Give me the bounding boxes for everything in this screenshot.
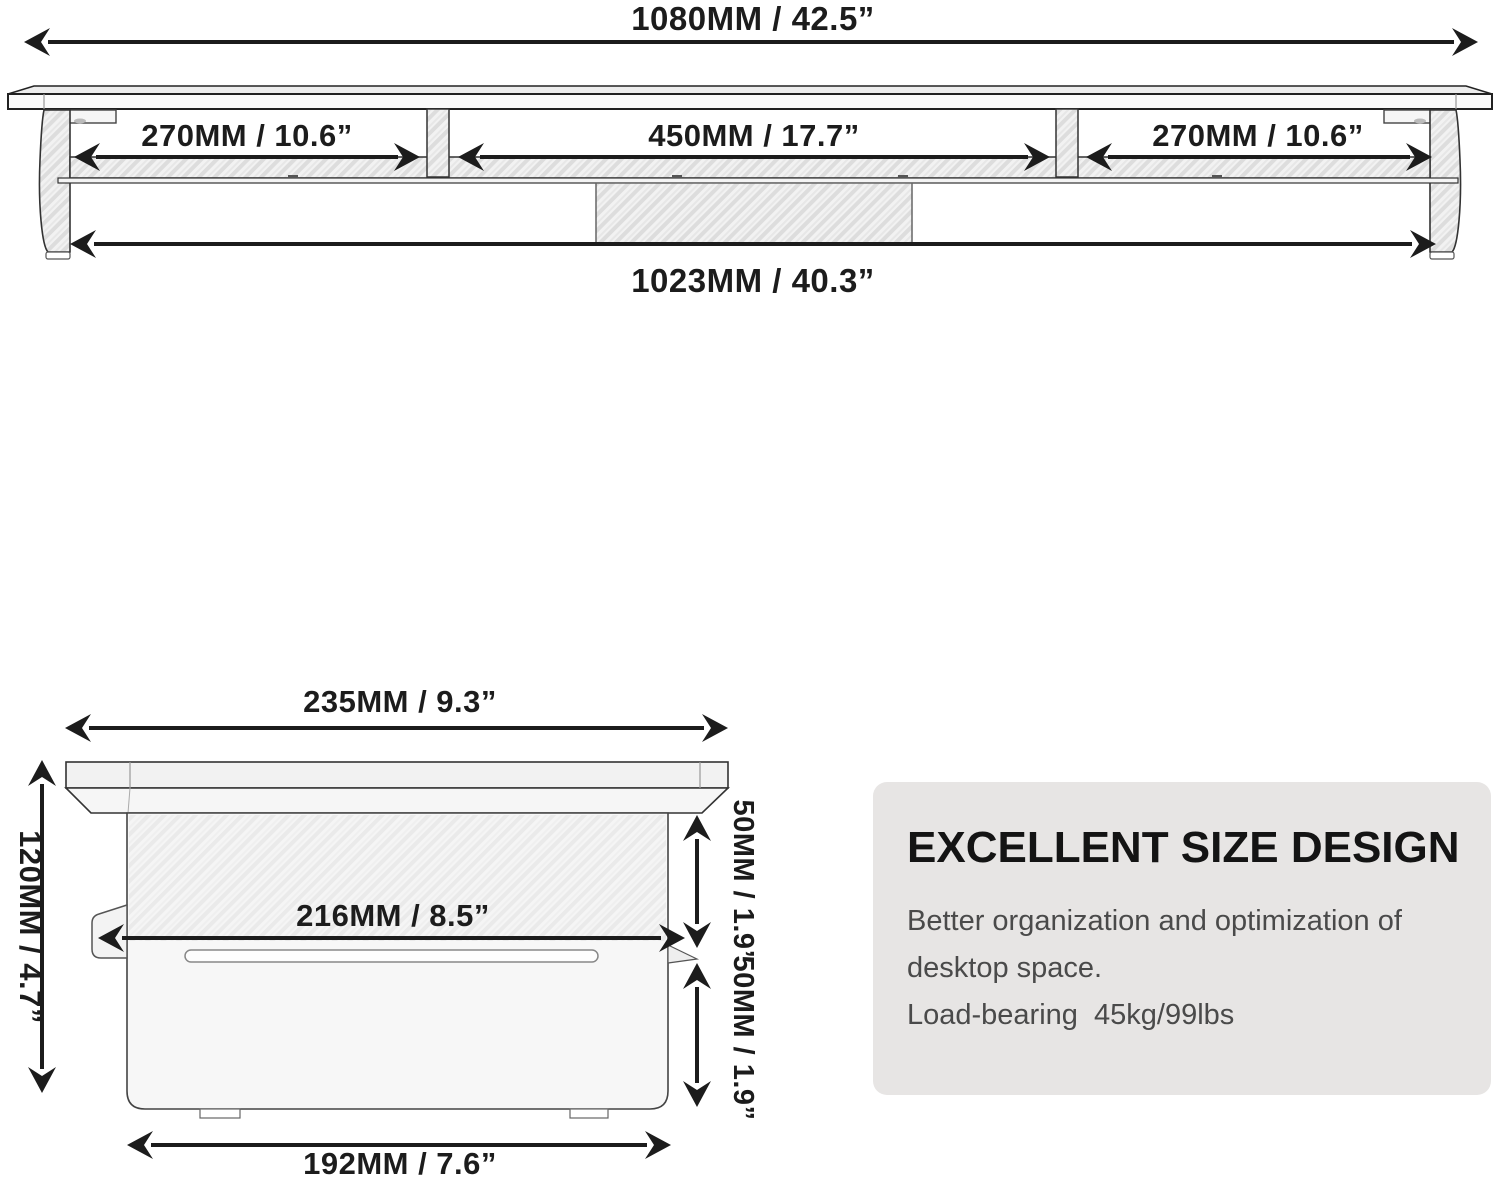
info-card: EXCELLENT SIZE DESIGN Better organizatio… (873, 782, 1491, 1095)
shelf (58, 157, 1458, 183)
left-foot (46, 252, 70, 259)
side-middle-width-label: 216MM / 8.5” (296, 898, 490, 933)
product-dimension-infographic: 1080MM / 42.5” (0, 0, 1500, 1177)
side-foot-right (570, 1109, 608, 1118)
arrowhead-left-icon (70, 230, 96, 258)
right-wedge-bracket (668, 945, 697, 963)
arrowhead-up-icon (28, 760, 56, 786)
info-card-line: Better organization and optimization of (907, 898, 1471, 945)
arrowhead-left-icon (24, 28, 50, 56)
arrowhead-down-icon (683, 1081, 711, 1107)
side-bottom-width-label: 192MM / 7.6” (303, 1146, 497, 1177)
arrowhead-right-icon (702, 714, 728, 742)
monitor-stand-side-view: 235MM / 9.3” 120MM / 4.7” (0, 650, 790, 1177)
tabletop (8, 86, 1492, 109)
dimension-side-top-width: 235MM / 9.3” (65, 684, 728, 742)
inner-width-label: 1023MM / 40.3” (631, 262, 875, 299)
side-height-label: 120MM / 4.7” (13, 830, 48, 1024)
dimension-total-width: 1080MM / 42.5” (24, 0, 1478, 56)
left-leg (39, 110, 116, 259)
side-top-width-label: 235MM / 9.3” (303, 684, 497, 719)
arrowhead-up-icon (683, 963, 711, 989)
middle-section-label: 450MM / 17.7” (648, 118, 860, 153)
total-width-label: 1080MM / 42.5” (631, 0, 875, 37)
left-section-label: 270MM / 10.6” (141, 118, 353, 153)
arrowhead-up-icon (683, 815, 711, 841)
dimension-lower-gap: 50MM / 1.9” (683, 955, 759, 1120)
lower-gap-label: 50MM / 1.9” (727, 955, 759, 1120)
arrowhead-right-icon (1452, 28, 1478, 56)
center-panel (596, 183, 912, 243)
right-divider (1056, 109, 1078, 177)
arrowhead-down-icon (28, 1067, 56, 1093)
dimension-side-height: 120MM / 4.7” (13, 760, 56, 1093)
groove-slot (185, 950, 598, 962)
upper-gap-label: 50MM / 1.9” (727, 799, 759, 964)
arrowhead-left-icon (65, 714, 91, 742)
arrowhead-right-icon (645, 1131, 671, 1159)
monitor-stand-front-view: 1080MM / 42.5” (0, 0, 1500, 330)
tabletop-edge (66, 762, 728, 813)
info-card-title: EXCELLENT SIZE DESIGN (907, 826, 1471, 870)
arrowhead-down-icon (683, 922, 711, 948)
side-foot-left (200, 1109, 240, 1118)
info-card-line: desktop space. (907, 945, 1471, 992)
info-card-body: Better organization and optimization of … (907, 898, 1471, 1039)
right-foot (1430, 252, 1454, 259)
right-section-label: 270MM / 10.6” (1152, 118, 1364, 153)
arrowhead-left-icon (127, 1131, 153, 1159)
dimension-upper-gap: 50MM / 1.9” (683, 799, 759, 964)
info-card-line: Load-bearing 45kg/99lbs (907, 992, 1471, 1039)
dimension-side-bottom-width: 192MM / 7.6” (127, 1131, 671, 1177)
left-divider (427, 109, 449, 177)
